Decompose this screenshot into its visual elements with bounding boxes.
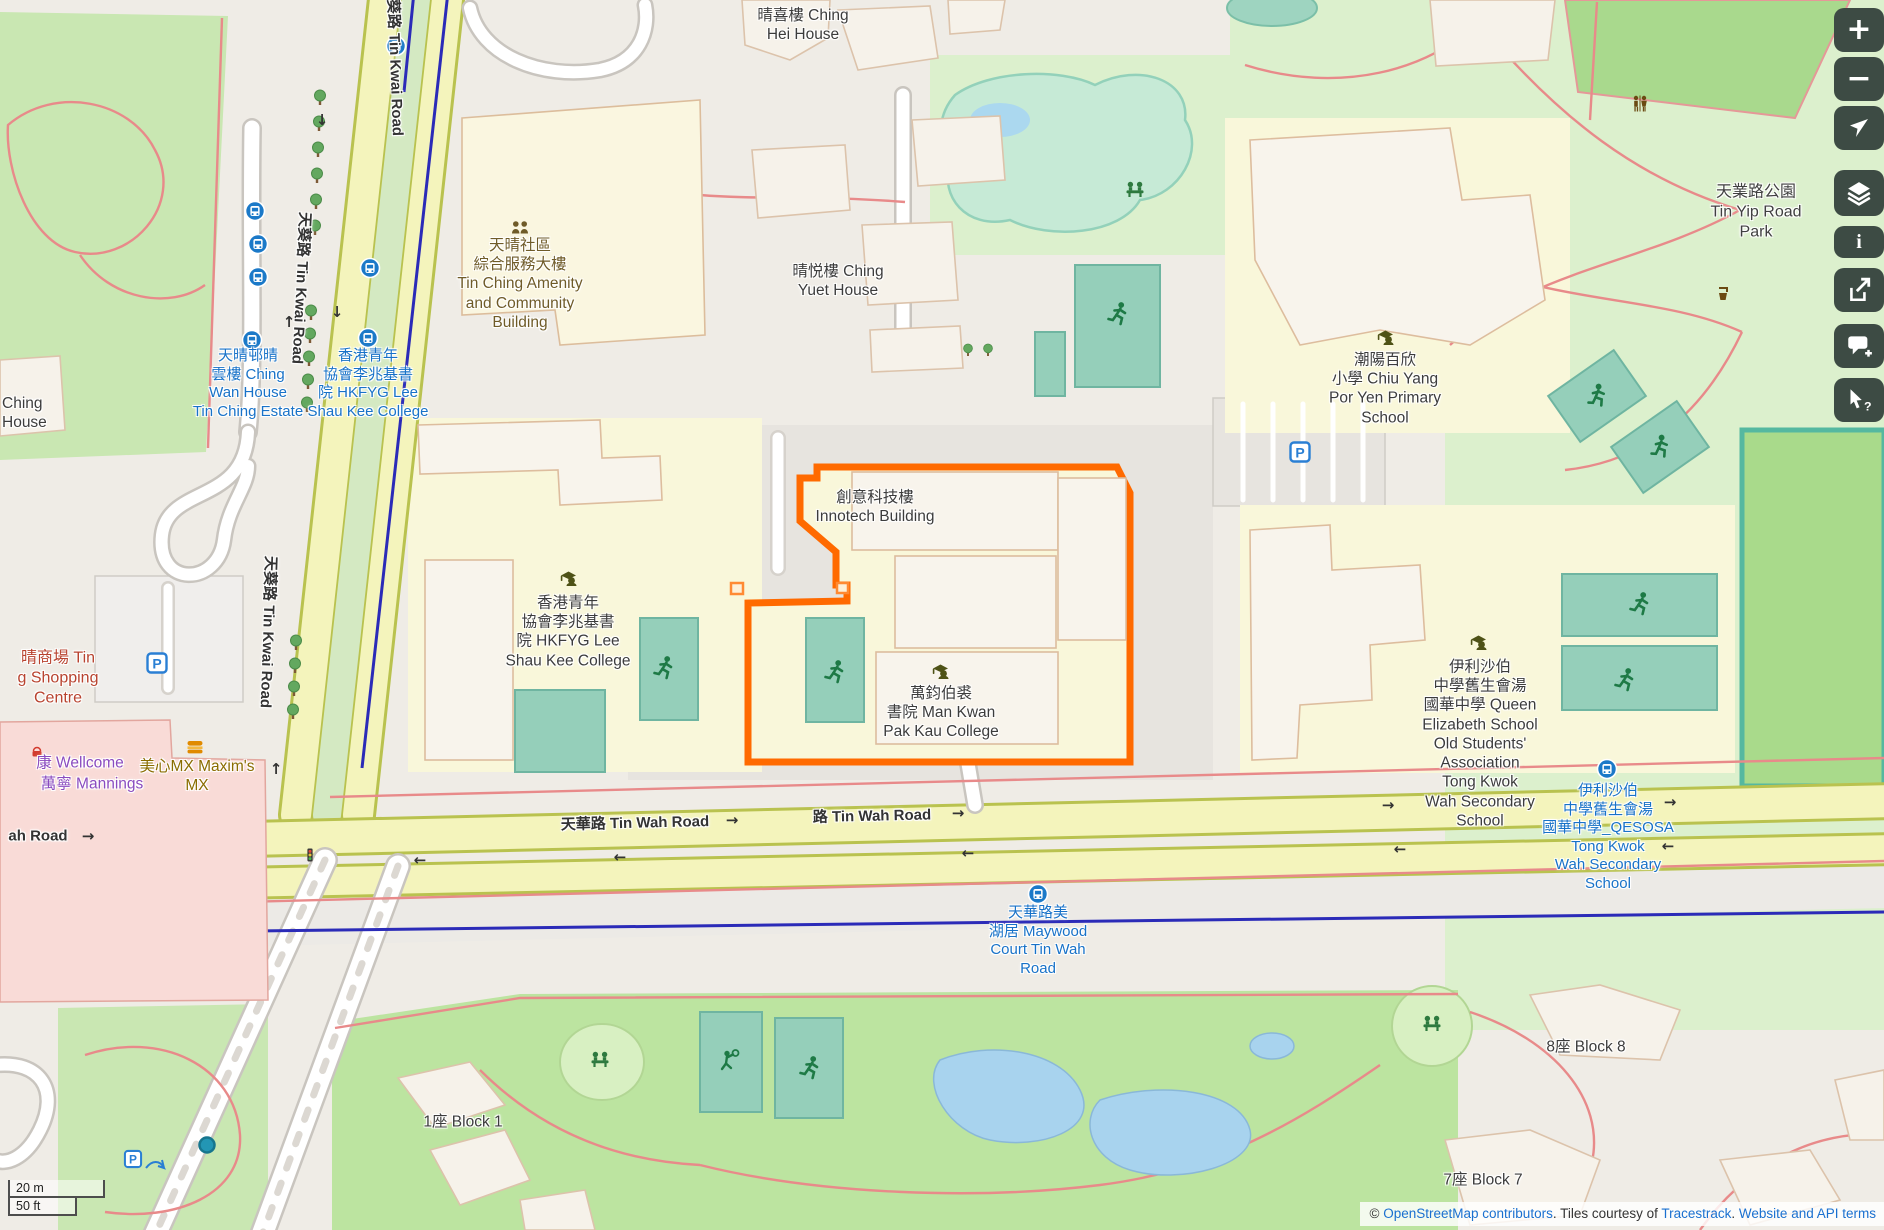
bus-stop-icon xyxy=(249,268,268,287)
bus-stop-icon xyxy=(246,202,265,221)
map-viewport[interactable]: P xyxy=(0,0,1884,1230)
layers-button[interactable] xyxy=(1834,170,1884,216)
layers-icon xyxy=(1846,180,1872,206)
comment-plus-icon xyxy=(1846,333,1873,360)
query-features-button[interactable]: ? xyxy=(1834,378,1884,422)
bus-stop-icon xyxy=(1029,885,1048,904)
poi-dot-icon xyxy=(200,1138,215,1153)
map-info-button[interactable]: i xyxy=(1834,226,1884,258)
fast-food-icon xyxy=(188,741,203,753)
attribution-osm-link[interactable]: OpenStreetMap contributors xyxy=(1383,1206,1553,1221)
shopping-centre-area xyxy=(0,720,268,1002)
attribution-middle: . Tiles courtesy of xyxy=(1553,1206,1662,1221)
add-note-button[interactable] xyxy=(1834,324,1884,368)
attribution-terms-link[interactable]: Website and API terms xyxy=(1739,1206,1876,1221)
share-icon xyxy=(1846,277,1872,303)
bus-stop-icon xyxy=(243,331,262,350)
minus-icon: − xyxy=(1846,64,1871,94)
scale-metric: 20 m xyxy=(8,1180,105,1198)
map-canvas[interactable]: P xyxy=(0,0,1884,1230)
parking-icon xyxy=(148,654,167,673)
zoom-out-button[interactable]: − xyxy=(1834,57,1884,101)
attribution-copyright: © xyxy=(1370,1206,1384,1221)
scale-bar: 20 m 50 ft xyxy=(8,1180,105,1216)
attribution-tracestrack-link[interactable]: Tracestrack xyxy=(1661,1206,1731,1221)
zoom-in-button[interactable]: + xyxy=(1834,8,1884,52)
query-question-glyph: ? xyxy=(1864,399,1872,413)
bus-stop-icon xyxy=(249,235,268,254)
locate-arrow-icon xyxy=(1847,116,1871,140)
bus-stop-icon xyxy=(1598,760,1617,779)
attribution-bar: © OpenStreetMap contributors. Tiles cour… xyxy=(1360,1202,1884,1226)
parking-icon xyxy=(1291,443,1310,462)
locate-me-button[interactable] xyxy=(1834,106,1884,150)
traffic-signal-icon xyxy=(307,849,312,862)
plus-icon: + xyxy=(1846,15,1871,45)
attribution-separator: . xyxy=(1731,1206,1739,1221)
scale-imperial: 50 ft xyxy=(8,1198,77,1216)
info-icon: i xyxy=(1856,232,1862,252)
bus-stop-icon xyxy=(387,37,406,56)
share-button[interactable] xyxy=(1834,268,1884,312)
query-cursor-icon: ? xyxy=(1846,387,1873,414)
bus-stop-icon xyxy=(361,259,380,278)
bus-stop-icon xyxy=(359,329,378,348)
parking-icon xyxy=(125,1151,141,1167)
